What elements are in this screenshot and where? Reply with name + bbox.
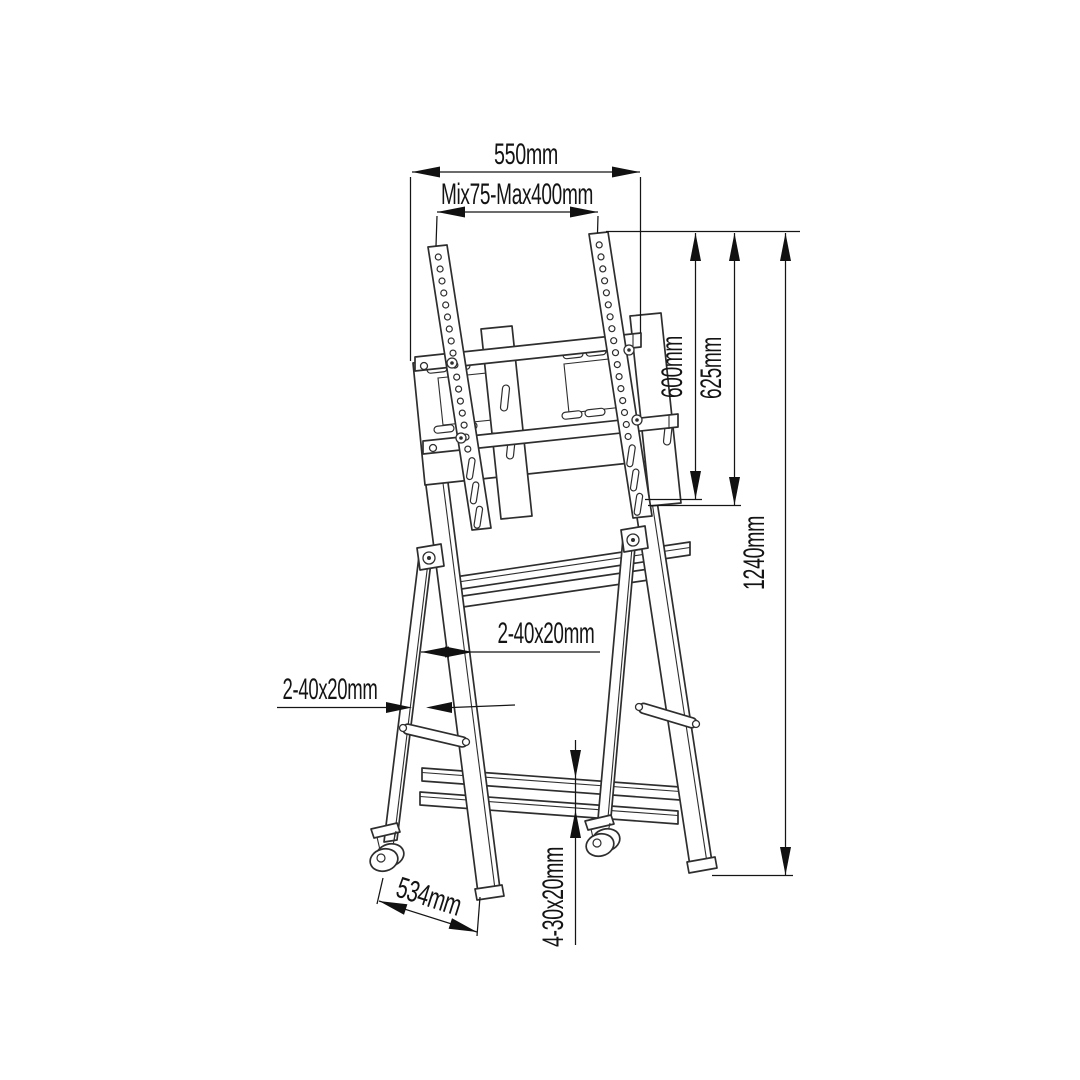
dim-lower-leg-profile: 2-40x20mm xyxy=(277,673,515,713)
dim-base-bar-profile: 4-30x20mm xyxy=(537,740,581,947)
dim-bracket-height-label: 600mm xyxy=(656,336,689,398)
dim-total-height-label: 1240mm xyxy=(738,516,771,590)
technical-drawing: 550mm Mix75-Max400mm 600mm 625mm xyxy=(0,0,1080,1080)
drawing-canvas: 550mm Mix75-Max400mm 600mm 625mm xyxy=(0,0,1080,1080)
stand-frame xyxy=(368,442,717,900)
caster-right xyxy=(584,815,623,859)
hinge-left xyxy=(417,544,444,570)
dim-base-bar-profile-label: 4-30x20mm xyxy=(537,847,570,947)
dim-upper-leg-profile-label: 2-40x20mm xyxy=(498,617,595,650)
dim-upright-height-label: 625mm xyxy=(695,337,728,399)
dim-vesa-range-label: Mix75-Max400mm xyxy=(441,178,593,211)
dim-lower-leg-profile-label: 2-40x20mm xyxy=(283,673,378,706)
caster-right-hub xyxy=(593,839,601,847)
dim-top-width-label: 550mm xyxy=(494,138,558,171)
dim-vesa-range: Mix75-Max400mm xyxy=(436,178,598,246)
caster-left xyxy=(368,823,407,874)
upright-left xyxy=(424,467,500,893)
hinge-right xyxy=(621,526,648,552)
dim-total-height: 1240mm xyxy=(712,233,793,876)
caster-left-hub xyxy=(377,854,385,862)
dim-base-depth: 534mm xyxy=(377,871,480,936)
dim-base-depth-label: 534mm xyxy=(392,871,465,922)
dimension-annotations: 550mm Mix75-Max400mm 600mm 625mm xyxy=(277,138,800,947)
